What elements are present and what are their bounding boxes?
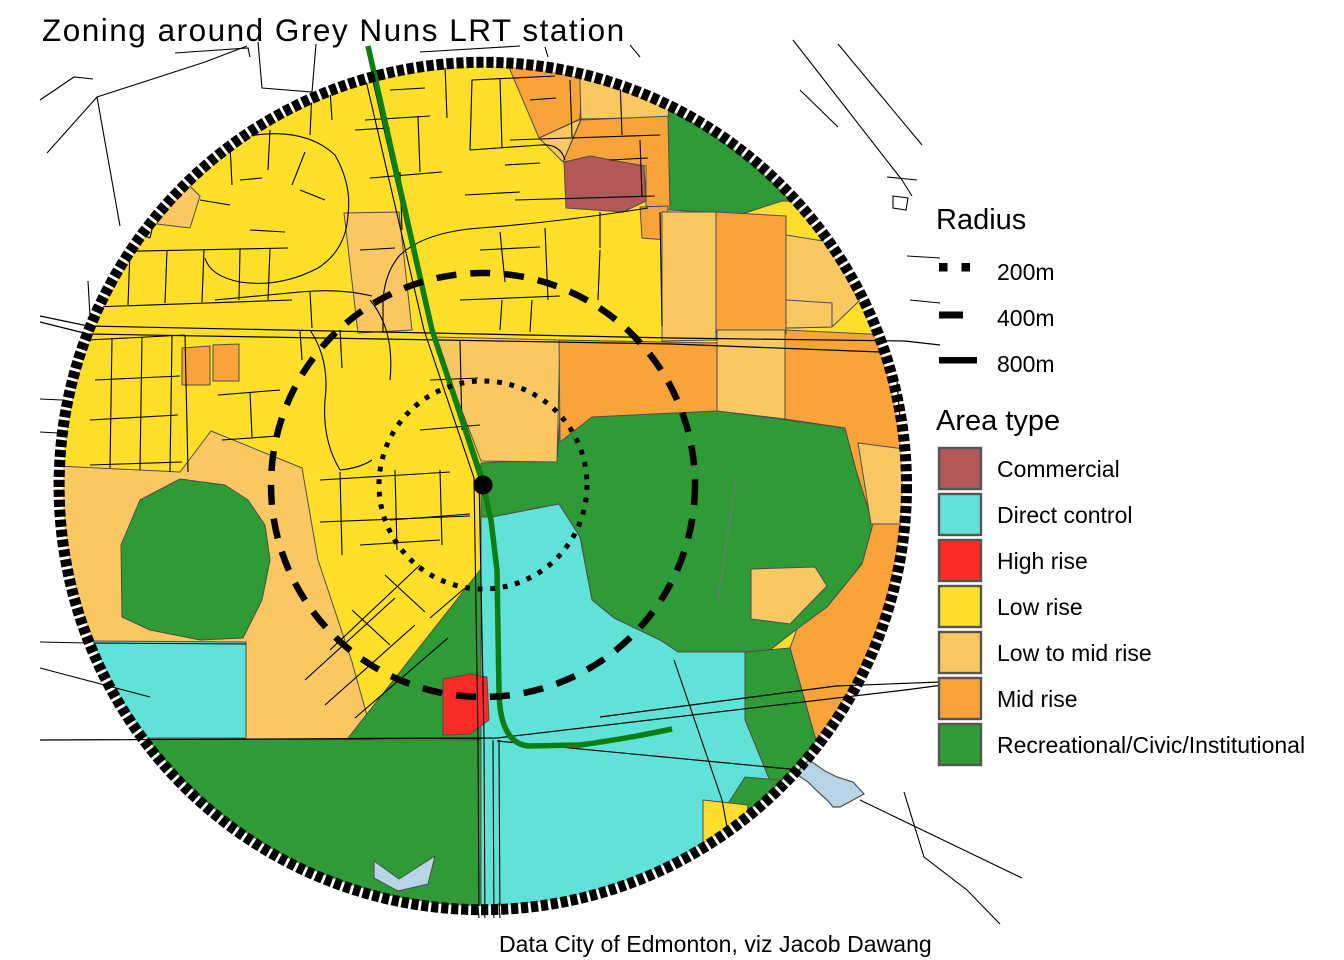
svg-text:Recreational/Civic/Institution: Recreational/Civic/Institutional (997, 732, 1305, 758)
svg-text:Mid rise: Mid rise (997, 686, 1078, 712)
svg-text:High rise: High rise (997, 548, 1088, 574)
svg-text:Low rise: Low rise (997, 594, 1083, 620)
svg-text:400m: 400m (997, 305, 1055, 331)
svg-text:Commercial: Commercial (997, 456, 1120, 482)
svg-text:Zoning around Grey Nuns LRT st: Zoning around Grey Nuns LRT station (42, 12, 626, 48)
svg-text:Radius: Radius (936, 204, 1026, 236)
svg-text:Area type: Area type (936, 405, 1060, 437)
svg-text:800m: 800m (997, 351, 1055, 377)
svg-text:200m: 200m (997, 259, 1055, 285)
svg-text:Low to mid rise: Low to mid rise (997, 640, 1152, 666)
svg-text:Data City of Edmonton, viz Jac: Data City of Edmonton, viz Jacob Dawang (499, 931, 932, 957)
svg-text:Direct control: Direct control (997, 502, 1132, 528)
